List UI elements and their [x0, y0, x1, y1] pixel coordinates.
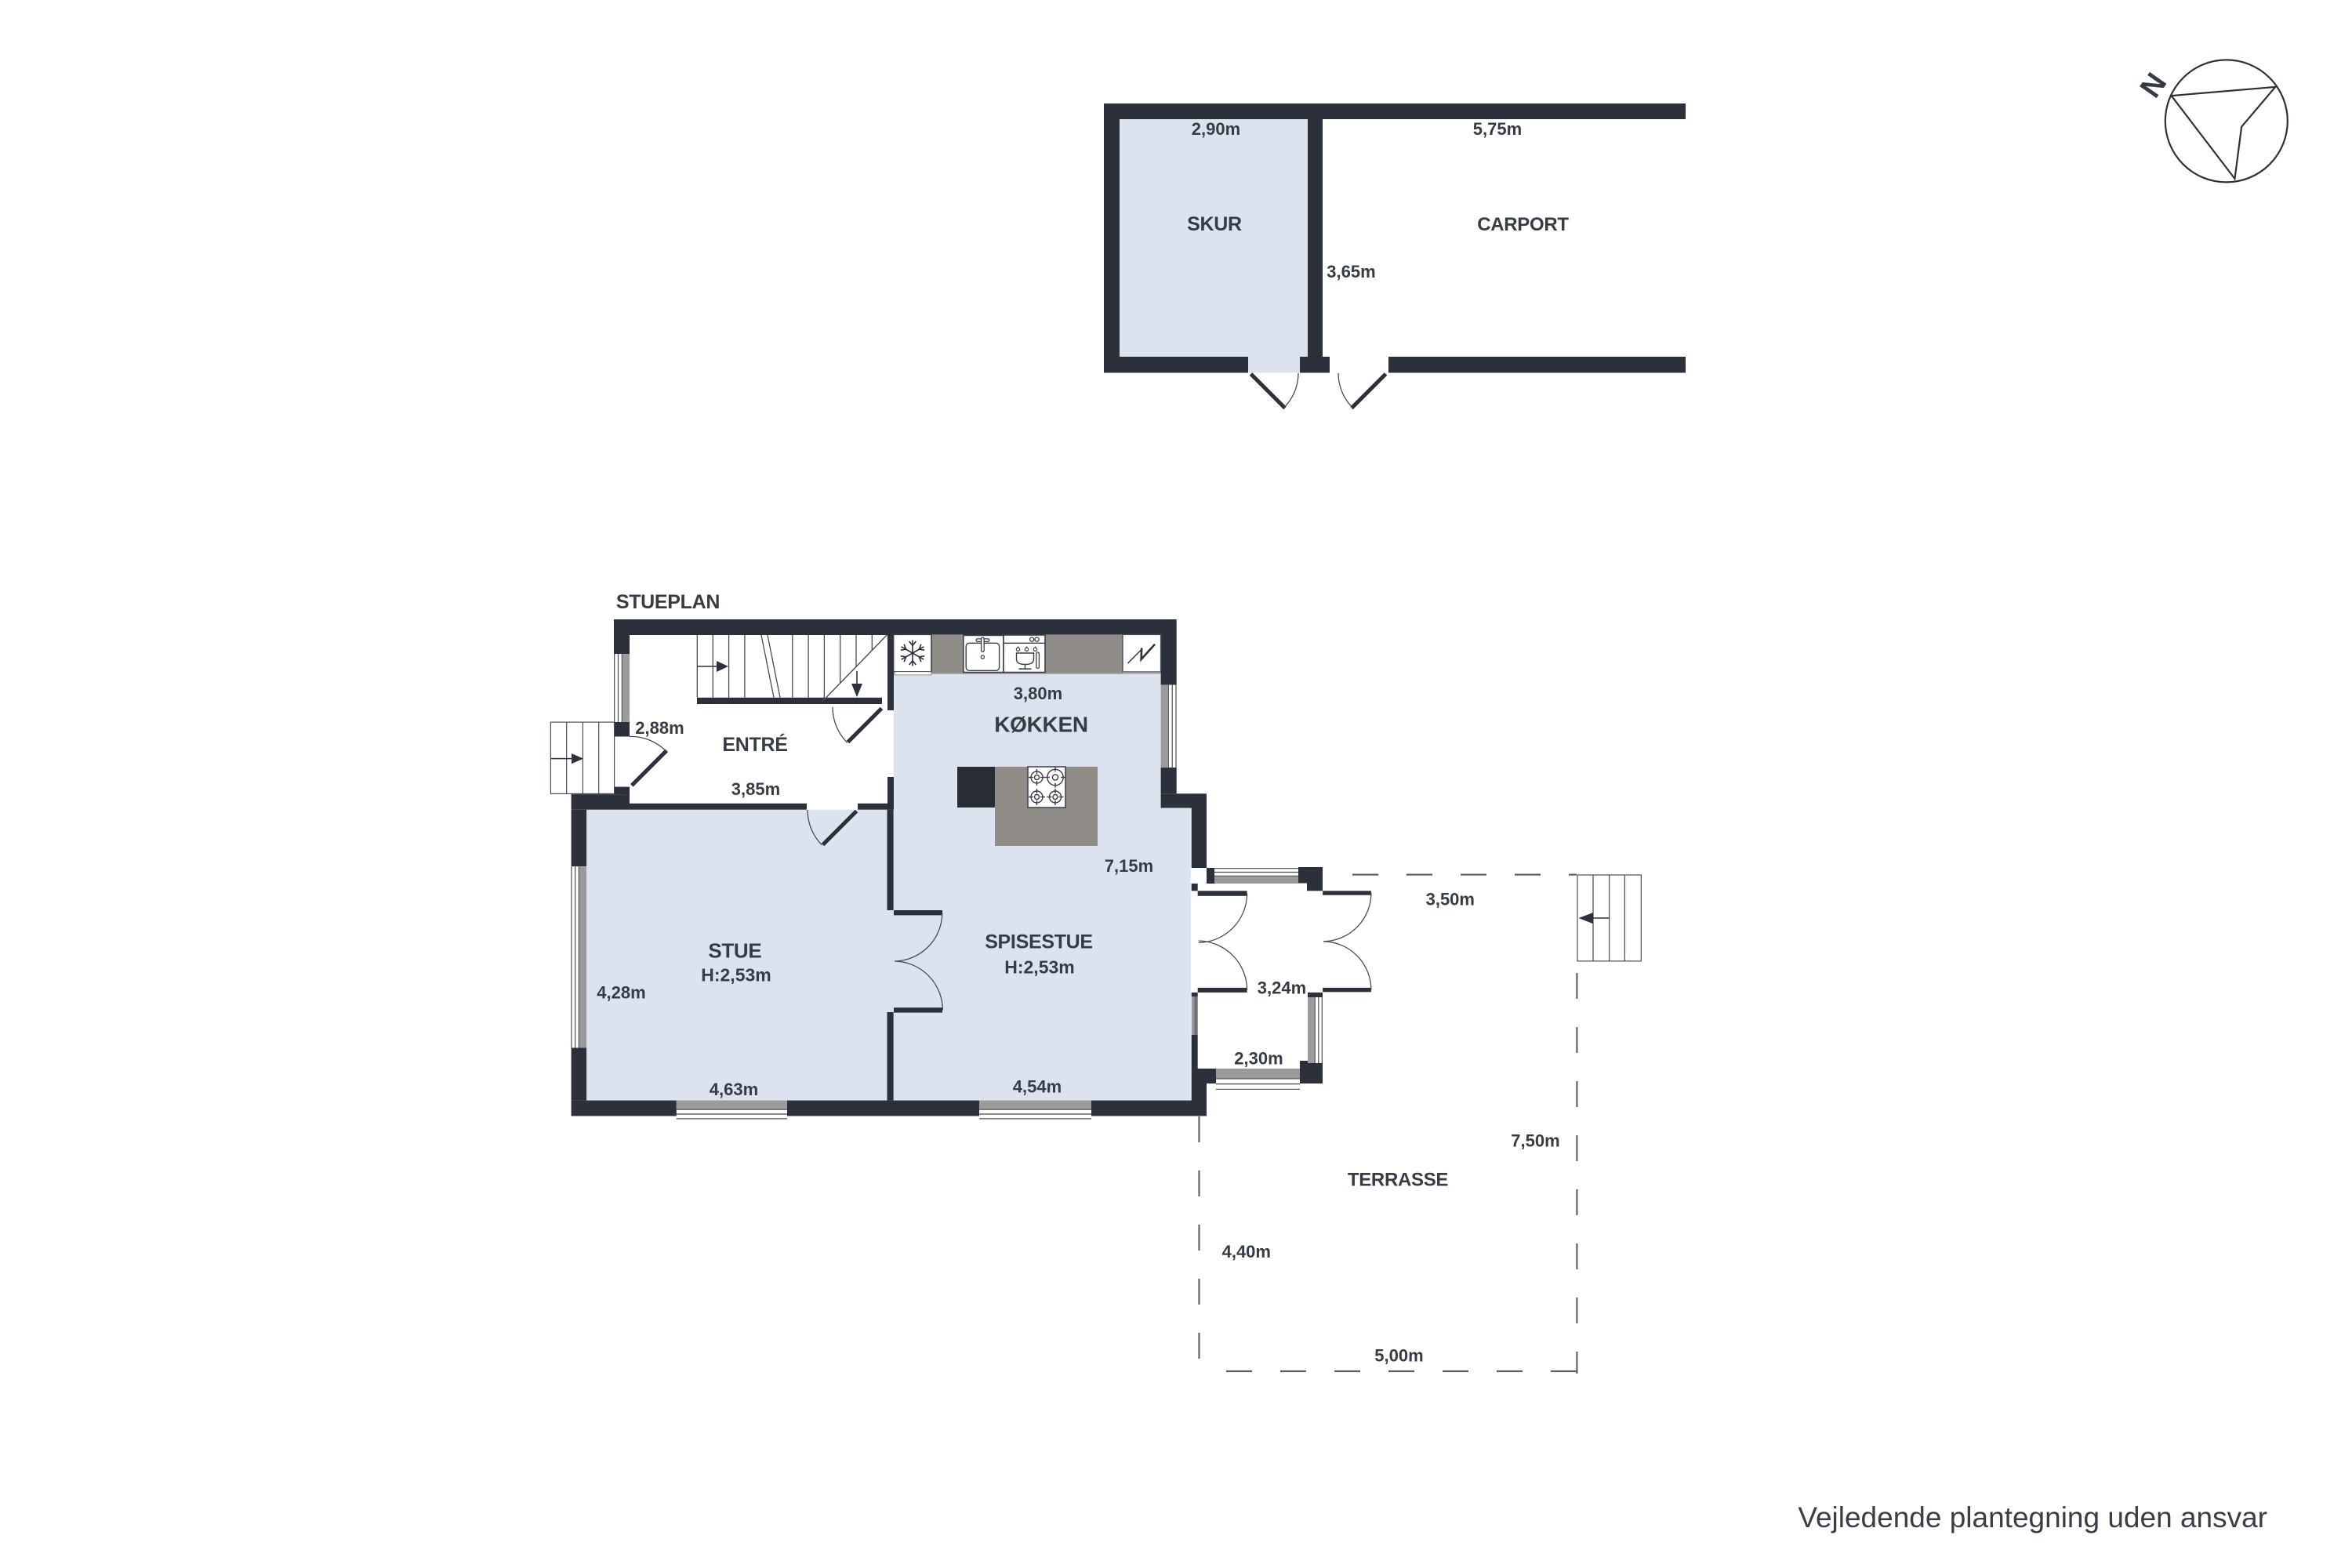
svg-text:CARPORT: CARPORT [1477, 214, 1569, 235]
svg-text:4,54m: 4,54m [1013, 1076, 1062, 1096]
svg-text:TERRASSE: TERRASSE [1348, 1170, 1449, 1191]
svg-text:H:2,53m: H:2,53m [701, 964, 771, 985]
svg-text:2,90m: 2,90m [1192, 119, 1240, 139]
svg-text:7,50m: 7,50m [1511, 1131, 1559, 1151]
svg-text:2,30m: 2,30m [1234, 1048, 1283, 1068]
svg-text:H:2,53m: H:2,53m [1004, 956, 1074, 977]
svg-text:3,24m: 3,24m [1258, 978, 1306, 997]
svg-text:STUE: STUE [708, 938, 761, 962]
svg-text:7,15m: 7,15m [1105, 856, 1153, 876]
svg-text:4,63m: 4,63m [710, 1080, 758, 1099]
svg-text:3,50m: 3,50m [1426, 889, 1475, 909]
svg-text:SKUR: SKUR [1187, 213, 1242, 235]
svg-text:SPISESTUE: SPISESTUE [985, 931, 1093, 953]
svg-text:STUEPLAN: STUEPLAN [616, 591, 720, 613]
svg-text:5,75m: 5,75m [1473, 119, 1522, 139]
svg-text:5,00m: 5,00m [1374, 1345, 1423, 1365]
svg-text:KØKKEN: KØKKEN [994, 713, 1088, 737]
svg-text:3,85m: 3,85m [731, 779, 780, 799]
svg-text:Vejledende plantegning uden an: Vejledende plantegning uden ansvar [1798, 1501, 2267, 1534]
svg-text:3,65m: 3,65m [1327, 262, 1375, 281]
svg-text:4,28m: 4,28m [597, 982, 645, 1002]
svg-text:2,88m: 2,88m [635, 718, 684, 738]
svg-text:ENTRÉ: ENTRÉ [722, 733, 787, 756]
svg-text:4,40m: 4,40m [1222, 1242, 1271, 1261]
svg-text:3,80m: 3,80m [1014, 684, 1062, 703]
